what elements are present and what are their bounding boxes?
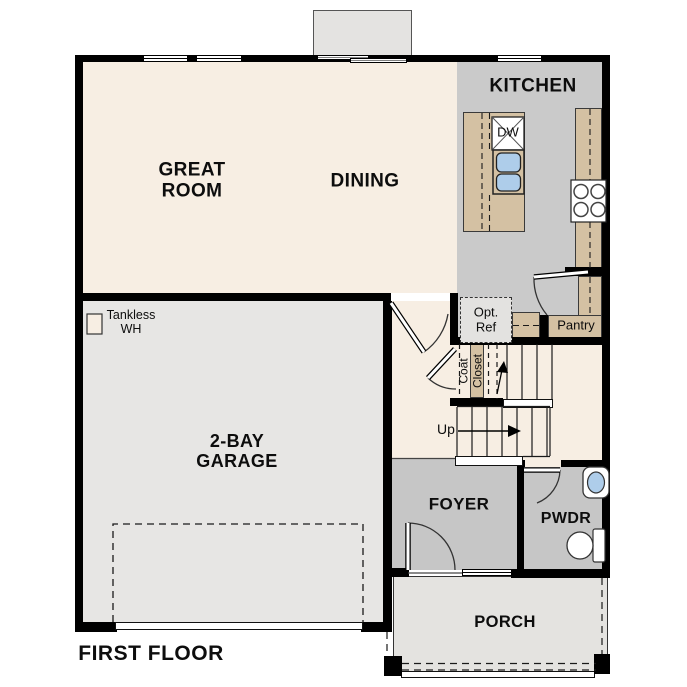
garage-entry-door-arc <box>424 314 448 352</box>
garage-label: 2-BAY GARAGE <box>196 431 277 471</box>
dining-label: DINING <box>331 170 400 191</box>
great-room-label: GREAT ROOM <box>158 160 225 203</box>
stairs-up-label: Up <box>437 422 455 438</box>
tankless-wh-label: Tankless WH <box>107 308 156 336</box>
powder-label: PWDR <box>541 510 591 528</box>
kitchen-label: KITCHEN <box>489 75 576 96</box>
coat-label: Coat <box>457 358 470 383</box>
floor-plan: GREAT ROOM DINING KITCHEN 2-BAY GARAGE F… <box>0 0 687 687</box>
tankless-wh-icon <box>87 314 102 334</box>
garage-door-dashed <box>113 524 363 622</box>
threshold-lines <box>392 459 462 574</box>
powder-sink-icon <box>583 467 609 498</box>
front-door-arc <box>408 523 455 570</box>
optional-refrigerator-label: Opt. Ref <box>474 305 499 334</box>
toilet-icon <box>567 529 605 562</box>
kitchen-sink-icon <box>493 150 524 194</box>
dishwasher-label: DW <box>497 126 519 141</box>
pantry-door-arc <box>534 277 547 315</box>
foyer-label: FOYER <box>429 494 490 513</box>
closet-label: Closet <box>471 354 484 388</box>
plan-title: FIRST FLOOR <box>78 642 224 666</box>
stove-icon <box>571 180 606 222</box>
pantry-label: Pantry <box>557 319 595 334</box>
porch-label: PORCH <box>474 613 536 631</box>
coat-closet-door-arc <box>428 378 456 389</box>
plan-linework <box>0 0 687 687</box>
powder-door-arc <box>537 470 560 503</box>
